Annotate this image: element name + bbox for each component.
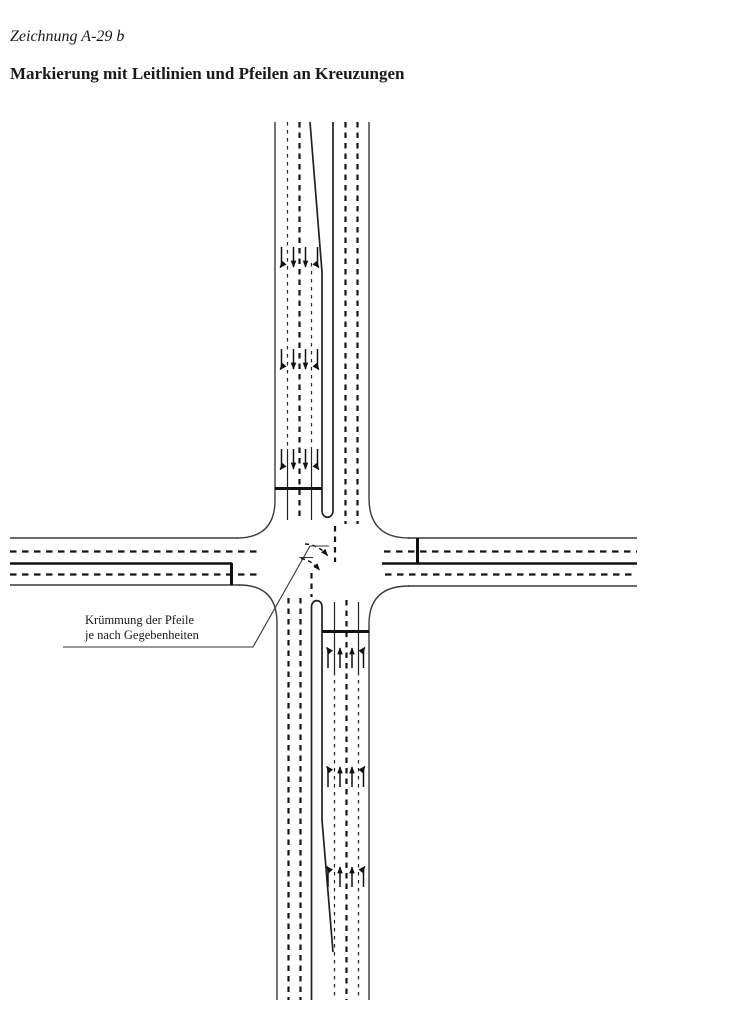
lane-arrow: [318, 349, 319, 370]
lane-arrow: [327, 648, 328, 669]
road-west: [10, 538, 262, 585]
intersection-diagram: Krümmung der Pfeile je nach Gegebenheite…: [0, 0, 744, 1033]
road-edge: [369, 586, 409, 1000]
road-south: [239, 585, 409, 1000]
curved-guide-arrow: [301, 559, 320, 571]
road-edge: [237, 122, 275, 538]
road-edge: [369, 122, 409, 538]
lane-arrow: [280, 247, 281, 268]
lane-arrow: [364, 648, 365, 669]
lane-arrow: [364, 867, 365, 888]
lane-arrow: [364, 767, 365, 788]
lane-arrow: [280, 349, 281, 370]
annotation-label-line2: je nach Gegebenheiten: [84, 628, 200, 642]
road-north: [237, 122, 409, 538]
road-east: [382, 538, 637, 586]
median-island-south: [312, 601, 334, 1000]
lane-arrow: [280, 449, 281, 470]
center-markings: [301, 526, 335, 597]
annotation-label-line1: Krümmung der Pfeile: [85, 613, 194, 627]
lane-arrow: [318, 449, 319, 470]
document-page: Zeichnung A-29 b Markierung mit Leitlini…: [0, 0, 744, 1033]
lane-arrow: [327, 767, 328, 788]
median-island-north: [310, 122, 333, 517]
lane-arrow: [318, 247, 319, 268]
